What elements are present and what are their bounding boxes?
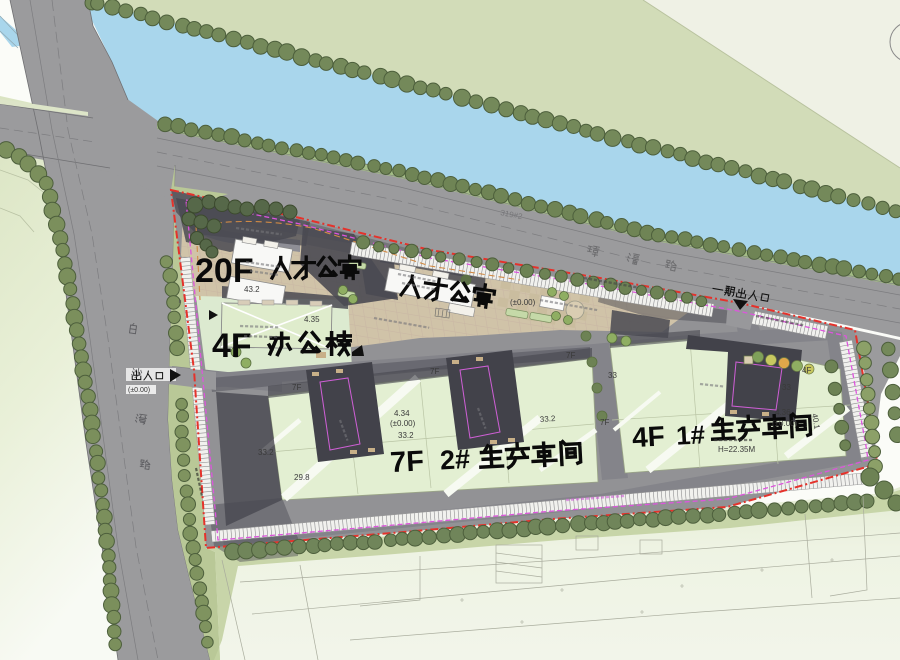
svg-text:29.8: 29.8 (294, 473, 310, 482)
svg-text:4.35: 4.35 (304, 315, 320, 324)
svg-text:4.36: 4.36 (775, 408, 791, 417)
svg-text:7F: 7F (430, 367, 439, 376)
svg-text:7F: 7F (389, 445, 424, 479)
svg-text:7F: 7F (600, 418, 609, 427)
svg-text:1#: 1# (675, 419, 706, 451)
svg-text:43.2: 43.2 (244, 285, 260, 294)
svg-text:7F: 7F (566, 351, 575, 360)
svg-text:4F: 4F (631, 420, 665, 453)
svg-text:7F: 7F (292, 383, 301, 392)
svg-text:(±0.00): (±0.00) (772, 419, 798, 428)
svg-text:2#: 2# (439, 444, 471, 476)
svg-text:33.2: 33.2 (540, 414, 557, 424)
svg-text:4F: 4F (212, 327, 252, 365)
svg-text:33: 33 (608, 371, 617, 380)
svg-text:H=22.35M: H=22.35M (718, 445, 755, 454)
svg-text:33: 33 (782, 383, 791, 392)
svg-text:33.2: 33.2 (258, 448, 274, 457)
svg-text:4F: 4F (802, 366, 811, 375)
svg-text:4.34: 4.34 (394, 409, 410, 418)
svg-text:(±0.00): (±0.00) (390, 419, 416, 428)
svg-text:33.2: 33.2 (398, 431, 414, 440)
svg-text:(±0.00): (±0.00) (510, 298, 536, 307)
svg-text:(±0.00): (±0.00) (128, 387, 150, 394)
